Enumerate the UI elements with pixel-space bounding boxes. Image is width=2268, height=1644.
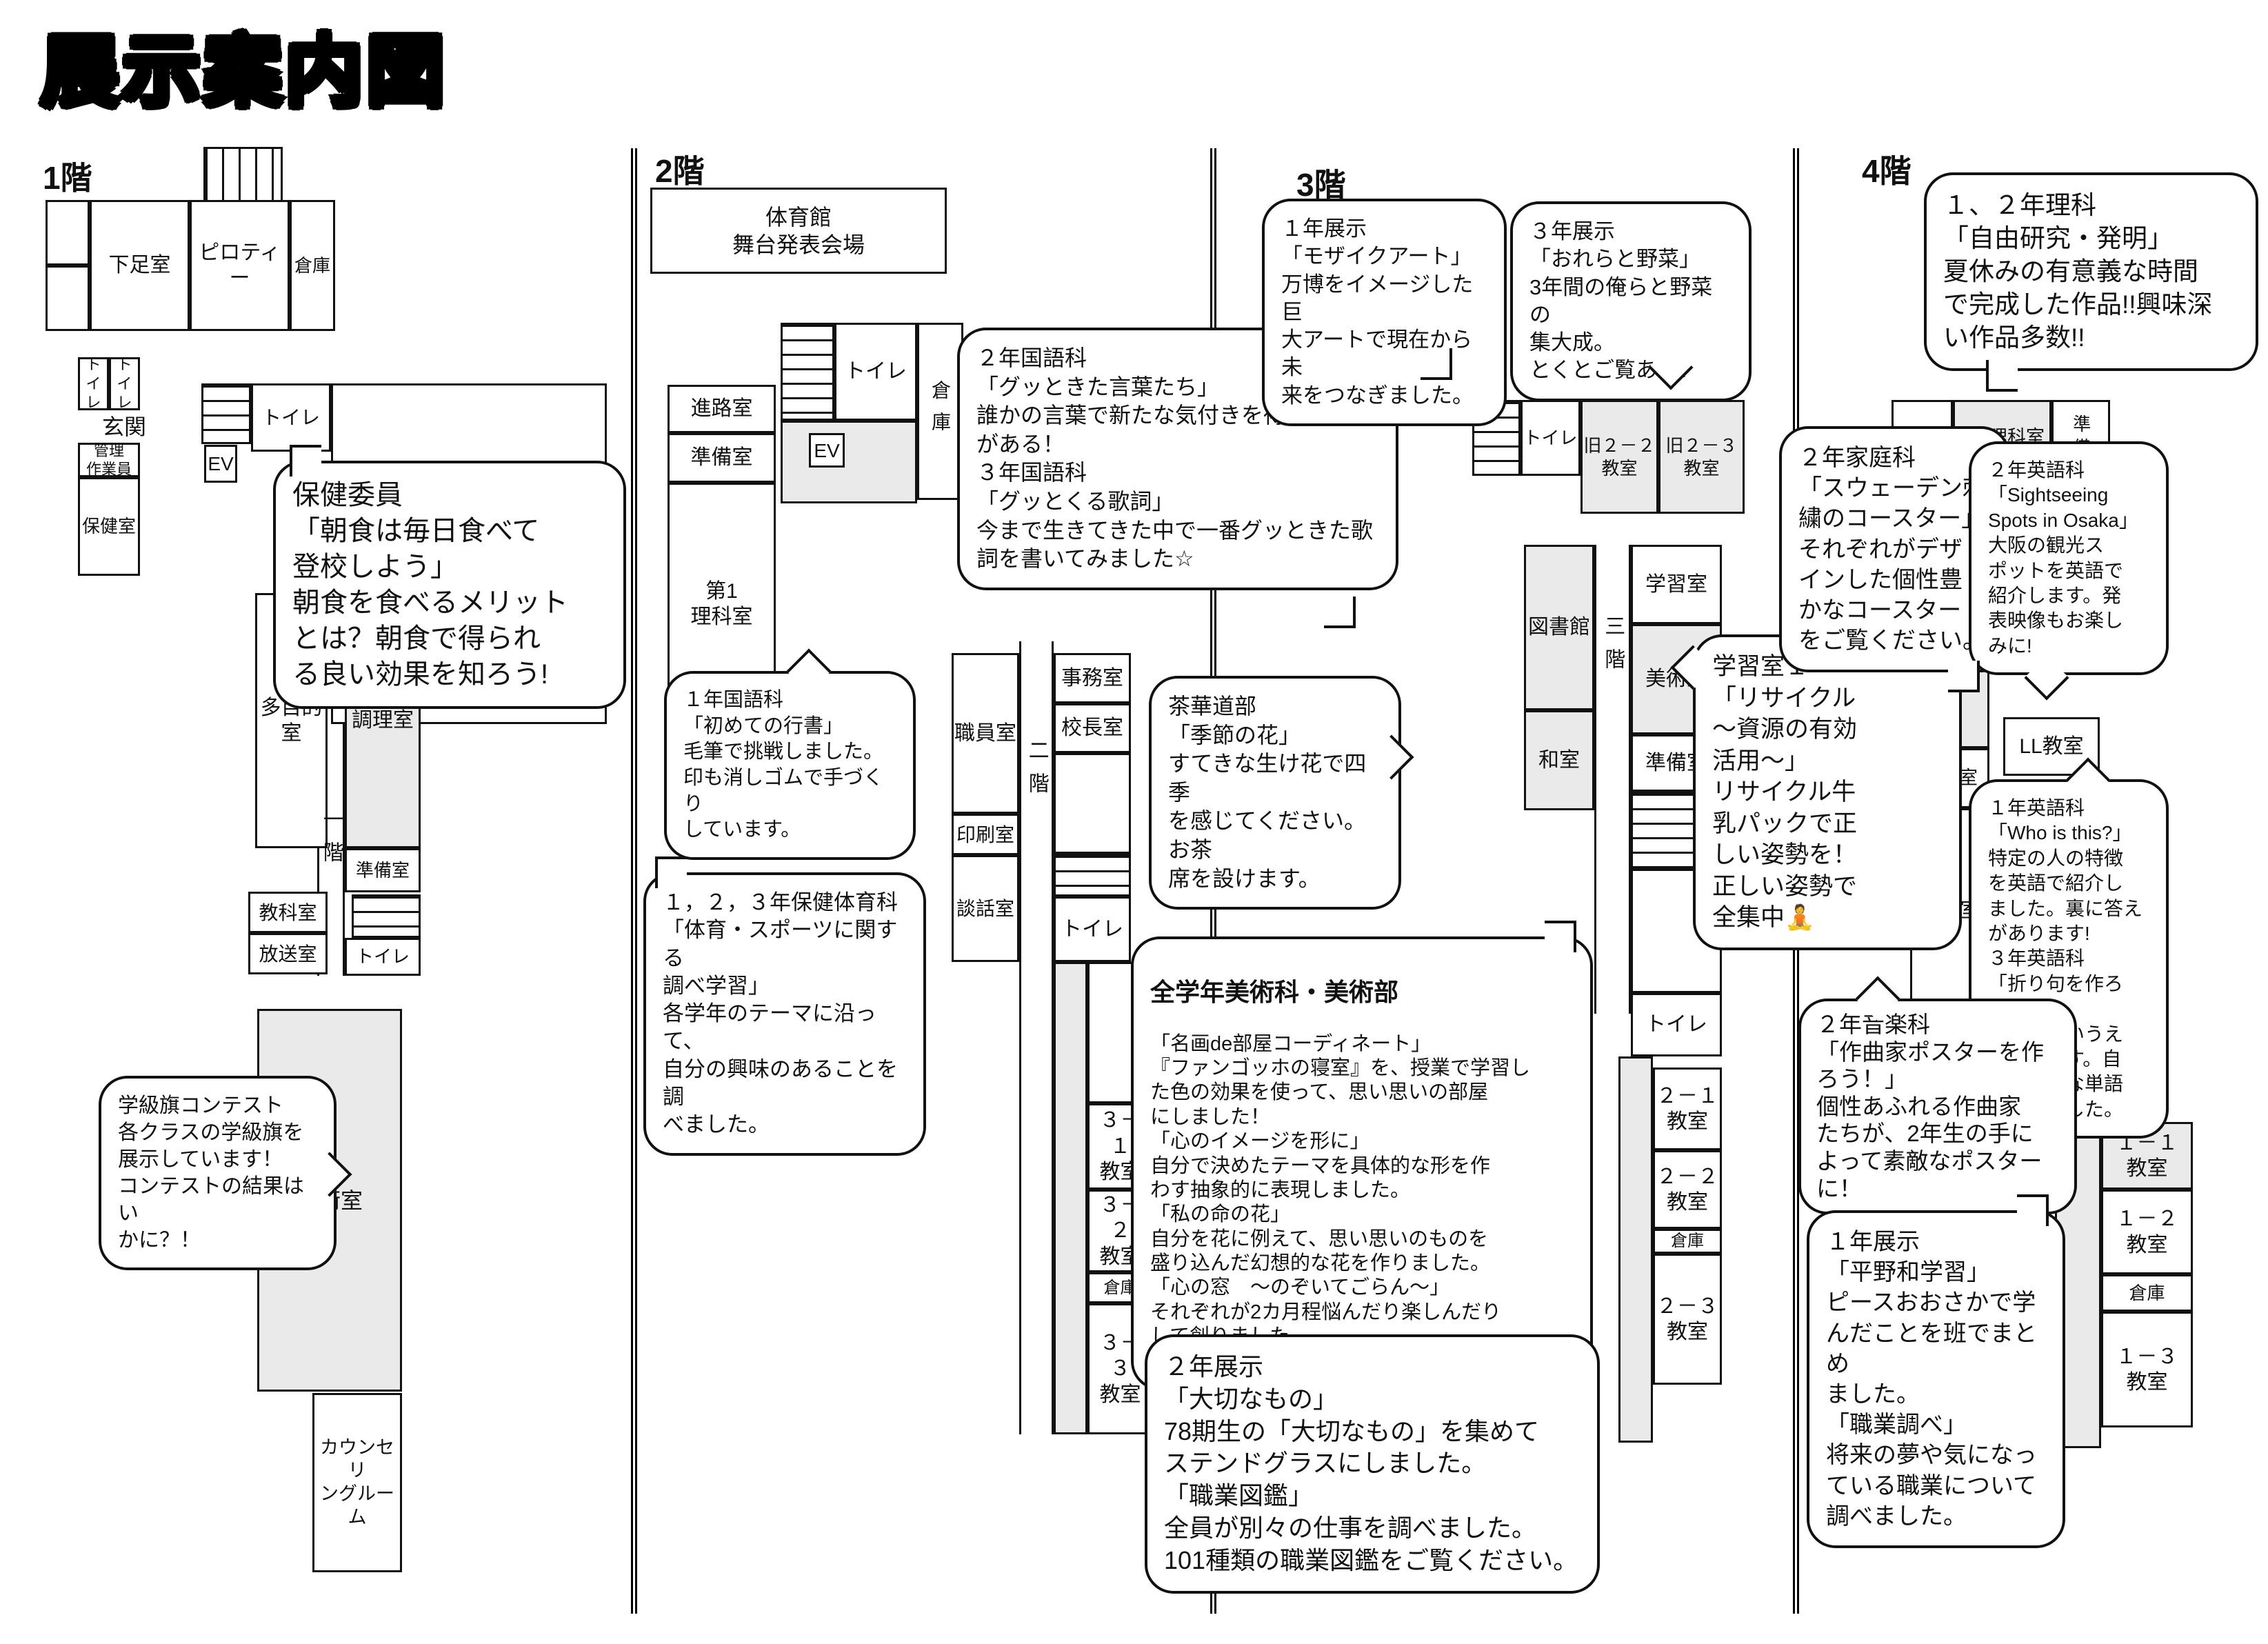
bubble-class-flag: 学級旗コンテスト 各クラスの学級旗を 展示しています！ コンテストの結果はい か…: [99, 1076, 337, 1270]
bubble-pe: １，２，３年保健体育科 「体育・スポーツに関する 調べ学習」 各学年のテーマに沿…: [643, 872, 926, 1156]
bubble-science-1-2: １、２年理科 「自由研究・発明」 夏休みの有意義な時間 で完成した作品!!興味深…: [1924, 172, 2258, 371]
bubble-3rd-veggies: ３年展示 「おれらと野菜」 3年間の俺らと野菜の 集大成。 とくとご覧あれ！: [1510, 201, 1752, 401]
room-broadcast: 放送室: [248, 933, 328, 974]
room-library: 図書館: [1524, 545, 1594, 710]
bubble-tail: [1545, 921, 1576, 952]
bubble-tea-flower-club: 茶華道部 「季節の花」 すてきな生け花で四季 を感じてください。お茶 席を設けま…: [1149, 676, 1401, 910]
room-lounge: 談話室: [952, 855, 1019, 962]
bubble-1st-mosaic: １年展示 「モザイクアート」 万博をイメージした巨 大アートで現在から未 来をつ…: [1262, 199, 1507, 426]
room-staff: 職員室: [952, 653, 1019, 814]
room-empty: [46, 200, 90, 265]
room-careers: 進路室: [668, 385, 776, 433]
room-empty: [46, 265, 90, 331]
bubble-tail: [655, 856, 687, 888]
room-elevator: EV: [204, 445, 237, 483]
room-storage: 倉庫: [917, 323, 963, 500]
room-office: 事務室: [1054, 653, 1131, 703]
room-storage: 倉庫: [290, 200, 335, 331]
bubble-tail: [290, 445, 321, 477]
room-old-2-2: 旧２－２ 教室: [1580, 400, 1658, 514]
bubble-hirano-peace: １年展示 「平野和学習」 ピースおおさかで学 んだことを班でまとめ ました。 「…: [1807, 1210, 2065, 1548]
bubble-2nd-exhibit: ２年展示 「大切なもの」 78期生の「大切なもの」を集めて ステンドグラスにしま…: [1145, 1334, 1600, 1594]
room-toilet: トイレ: [109, 357, 140, 410]
room-toilet: トイレ: [345, 938, 421, 976]
room-old-2-3: 旧２－３ 教室: [1658, 400, 1745, 514]
room-toilet: トイレ: [1521, 400, 1580, 476]
stairs: [203, 147, 283, 202]
corridor-3f-label: 三階: [1593, 586, 1632, 710]
corridor-shaded: [1618, 1056, 1653, 1443]
room-class-1-3: １－３ 教室: [2101, 1312, 2193, 1427]
room-nurse: 保健室: [78, 477, 140, 576]
bubble-tail: [1421, 348, 1452, 380]
corridor-shaded: [781, 421, 917, 503]
corridor-2f-label: 二階: [1018, 710, 1055, 834]
room-gym-stage: 体育館 舞台発表会場: [650, 188, 947, 274]
bubble-tail: [1948, 661, 1980, 692]
room-class-1-2: １－２ 教室: [2101, 1190, 2193, 1274]
stairs: [201, 383, 251, 444]
bubble-art-header: 全学年美術科・美術部: [1150, 977, 1574, 1008]
room-toilet: トイレ: [1054, 896, 1131, 962]
bubble-art: 全学年美術科・美術部 「名画de部屋コーディネート」 『ファンゴッホの寝室』を、…: [1131, 936, 1593, 1390]
bubble-english-2nd: ２年英語科 「Sightseeing Spots in Osaka」 大阪の観光…: [1969, 441, 2169, 675]
stairs: [781, 323, 834, 421]
room-toilet: トイレ: [251, 383, 331, 452]
room-class-2-1: ２－１ 教室: [1653, 1067, 1722, 1150]
room-storage: 倉庫: [1653, 1229, 1722, 1254]
exhibition-guide-map: 展示案内図 1階 下足室 ピロティー 倉庫 トイレ トイレ 玄関 管理 作業員 …: [0, 0, 2268, 1644]
stairs: [352, 894, 421, 938]
bubble-music-2nd: ２年音楽科 「作曲家ポスターを作 ろう！」 個性あふれる作曲家 たちが、2年生の…: [1798, 999, 2077, 1214]
bubble-art-body: 「名画de部屋コーディネート」 『ファンゴッホの寝室』を、授業で学習し た色の効…: [1150, 1032, 1574, 1350]
stairs: [1054, 854, 1131, 896]
room-pilotis: ピロティー: [190, 200, 290, 331]
entrance-label: 玄関: [83, 412, 165, 441]
room-toilet: トイレ: [78, 357, 109, 410]
room-elevator: EV: [809, 433, 845, 468]
bubble-study-room1: 学習室１ 「リサイクル ～資源の有効 活用～」 リサイクル牛 乳パックで正 しい…: [1693, 634, 1962, 950]
room-prep: 準備室: [668, 433, 776, 483]
room-caretaker: 管理 作業員: [78, 443, 140, 477]
corridor-shaded: [1054, 962, 1087, 1434]
page-title: 展示案内図: [41, 10, 448, 121]
corridor-1f-label: 一階: [316, 779, 346, 903]
room-print: 印刷室: [952, 814, 1019, 855]
room-study: 学習室: [1631, 545, 1722, 624]
room-toilet: トイレ: [1631, 993, 1722, 1056]
room-class-2-2: ２－２ 教室: [1653, 1150, 1722, 1229]
room-subject: 教科室: [248, 892, 328, 933]
room-toilet: トイレ: [834, 323, 917, 421]
room-empty: [1054, 753, 1131, 854]
room-japanese-style: 和室: [1524, 710, 1594, 810]
floor-2-label: 2階: [655, 146, 705, 192]
room-shoe-lockers: 下足室: [90, 200, 190, 331]
bubble-tail: [2017, 1194, 2049, 1226]
floor-4-label: 4階: [1862, 146, 1911, 192]
room-counseling: カウンセリ ングルーム: [312, 1393, 402, 1572]
bubble-japanese-1st: １年国語科 「初めての行書」 毛筆で挑戦しました。 印も消しゴムで手づくり して…: [664, 671, 916, 860]
room-prep: 準備室: [345, 848, 421, 892]
room-class-2-3: ２－３ 教室: [1653, 1254, 1722, 1385]
floor-1-label: 1階: [43, 153, 92, 199]
room-storage: 倉庫: [2101, 1274, 2193, 1312]
bubble-health-committee: 保健委員 「朝食は毎日食べて 登校しよう」 朝食を食べるメリット とは？朝食で得…: [273, 461, 626, 709]
divider-1f-2f: [631, 148, 637, 1614]
room-principal: 校長室: [1054, 703, 1131, 753]
bubble-tail: [1986, 360, 2018, 392]
bubble-tail: [1324, 597, 1356, 628]
